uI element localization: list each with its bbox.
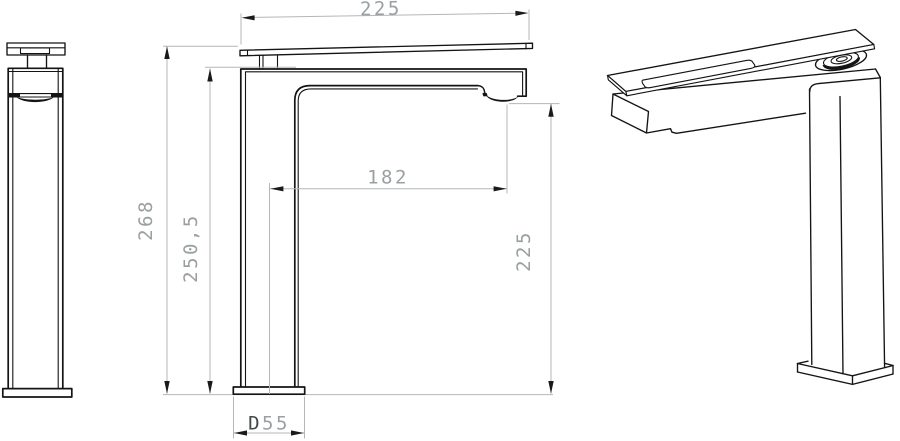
dim-top-width-label: 225	[360, 0, 402, 20]
dim-outlet-height: 225	[509, 104, 560, 394]
dim-base-diameter-value: 55	[262, 413, 290, 435]
dim-overall-height-arrow-bottom	[164, 381, 169, 394]
dim-base-diameter-arrow-left	[234, 430, 247, 435]
dim-base-diameter: D55	[234, 397, 305, 439]
dim-outlet-height-arrow-bottom	[548, 381, 553, 394]
perspective-column-right-edge	[880, 78, 884, 368]
dim-spout-reach-arrow-right	[494, 186, 507, 191]
dim-spout-reach-arrow-left	[270, 186, 283, 191]
dim-overall-height-label: 268	[135, 199, 157, 241]
dim-base-diameter-prefix: D	[248, 413, 262, 435]
dim-overall-height-arrow-top	[164, 46, 169, 59]
side-stem	[28, 55, 47, 68]
drawing-sheet: 225 268 250,5 182	[0, 0, 900, 441]
side-view	[3, 43, 72, 397]
front-arm-underside-inner	[298, 89, 477, 387]
dim-base-diameter-arrow-right	[291, 430, 304, 435]
perspective-arm-bottom-near-edge	[647, 113, 806, 133]
dim-spout-top-label: 250,5	[180, 213, 202, 283]
perspective-arm-tip-edge	[876, 69, 881, 78]
perspective-column-front-edge	[840, 97, 843, 374]
front-body-outline	[241, 69, 526, 387]
front-lever-plate	[240, 43, 533, 56]
front-body-inner-edge	[246, 72, 523, 387]
dim-spout-top-arrow-bottom	[207, 381, 212, 394]
dimensions: 225 268 250,5 182	[135, 0, 560, 439]
technical-drawing: 225 268 250,5 182	[0, 0, 900, 441]
front-view	[163, 43, 553, 394]
dim-top-width-arrow-left	[242, 15, 255, 20]
perspective-arm-end-cap	[612, 94, 649, 133]
side-body	[8, 68, 63, 389]
side-lever-boss	[21, 48, 50, 54]
dim-spout-top-arrow-top	[207, 69, 212, 82]
front-aerator	[486, 95, 518, 102]
perspective-view	[608, 30, 894, 385]
perspective-column-left-edge	[810, 89, 812, 365]
dim-top-width: 225	[241, 0, 529, 45]
dim-base-diameter-label: D55	[248, 413, 290, 435]
dim-spout-top-height: 250,5	[180, 67, 296, 394]
side-base	[3, 389, 72, 397]
front-arm-underside-outer	[295, 86, 478, 387]
dim-spout-reach: 182	[270, 105, 508, 395]
dim-top-width-arrow-right	[515, 11, 528, 16]
dim-outlet-height-label: 225	[513, 230, 535, 272]
perspective-base-top-front-edges	[798, 364, 894, 376]
perspective-arm-bottom-far-edge	[810, 78, 881, 92]
dim-spout-reach-label: 182	[367, 167, 409, 189]
dim-outlet-height-arrow-top	[548, 104, 553, 117]
